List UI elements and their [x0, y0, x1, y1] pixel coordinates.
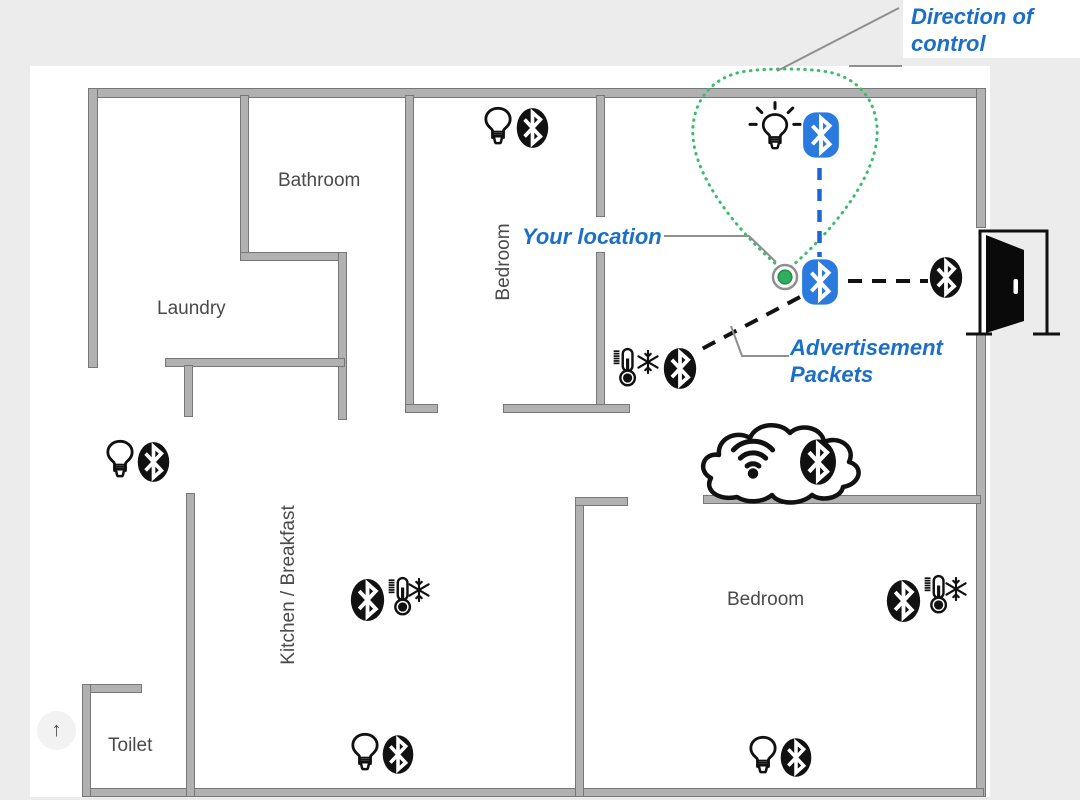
- bluetooth-icon-bedroom2-thermo: [887, 580, 920, 622]
- bulb-icon-kitchen: [353, 734, 377, 769]
- up-arrow-icon: ↑: [52, 719, 62, 742]
- thermostat-icon-bedroom2: [925, 576, 946, 612]
- bluetooth-icon-doorway: [664, 348, 696, 389]
- floorplan-overlay-svg: [0, 0, 1080, 800]
- bluetooth-blue-icon-location: [802, 259, 838, 304]
- room-label-toilet: Toilet: [108, 735, 152, 757]
- snowflake-icon-kitchen: [409, 579, 428, 601]
- your-location-label: Your location: [522, 223, 662, 250]
- room-label-bedroom-top: Bedroom: [493, 217, 515, 307]
- advertisement-line1: Advertisement: [790, 334, 943, 361]
- advertisement-line2: Packets: [790, 361, 943, 388]
- bluetooth-icon-hallway: [138, 442, 170, 482]
- thermostat-icon-doorway: [614, 349, 635, 385]
- snowflake-icon-doorway: [638, 351, 657, 373]
- controlled-bulb-icon: [750, 103, 800, 149]
- advertisement-link-dashed-left: [698, 297, 800, 351]
- entry-door-icon: [966, 231, 1060, 334]
- direction-of-control-cone: [693, 69, 877, 272]
- bulb-icon-bedroom-top: [486, 108, 510, 143]
- figure-stage: Bathroom Laundry Bedroom Kitchen / Break…: [0, 0, 1080, 800]
- room-label-laundry: Laundry: [157, 298, 226, 320]
- thermostat-icon-kitchen: [389, 578, 410, 614]
- room-label-kitchen: Kitchen / Breakfast: [278, 500, 300, 670]
- direction-of-control-line1: Direction of: [911, 3, 1080, 30]
- bluetooth-icon-kitchen-thermo: [351, 579, 384, 621]
- bluetooth-icon-bedroom-top: [517, 108, 549, 148]
- advertisement-callout-line: [731, 326, 789, 356]
- snowflake-icon-bedroom2: [946, 578, 965, 600]
- bluetooth-icon-bedroom-right: [781, 738, 812, 777]
- bluetooth-icon-gateway: [800, 439, 836, 484]
- your-location-dot: [778, 270, 792, 284]
- room-label-bathroom: Bathroom: [278, 170, 360, 192]
- bluetooth-icon-entry: [930, 257, 962, 298]
- direction-of-control-line2: control: [911, 30, 1080, 57]
- bluetooth-icon-kitchen: [383, 735, 414, 774]
- advertisement-packets-label: Advertisement Packets: [790, 334, 943, 388]
- bluetooth-blue-icon-bulb: [803, 112, 839, 157]
- direction-of-control-label: Direction of control: [903, 0, 1080, 58]
- gateway-cloud-icon: [703, 425, 858, 502]
- scroll-top-button[interactable]: ↑: [37, 711, 76, 750]
- direction-of-control-callout-line: [777, 8, 899, 71]
- room-label-bedroom-right: Bedroom: [727, 589, 804, 611]
- bulb-icon-hallway: [108, 441, 132, 476]
- bulb-icon-bedroom-right: [751, 737, 775, 772]
